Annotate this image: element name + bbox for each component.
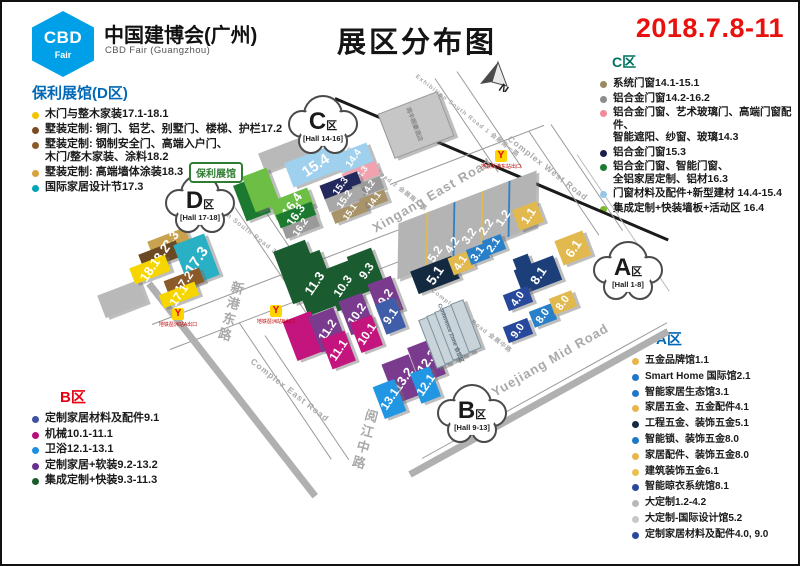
map-label: Conference Zone 会议区 xyxy=(436,302,466,364)
cloud-bump xyxy=(608,241,648,281)
hall-number-label: 12.1 xyxy=(413,371,438,398)
hall-number-label: 11.1 xyxy=(326,337,350,364)
logo-subtext: Fair xyxy=(55,50,72,60)
hall-1.1: 1.1 xyxy=(512,201,544,231)
road-line xyxy=(235,207,307,314)
hall-number-label: 8.1 xyxy=(527,263,550,286)
legend-item-label: Smart Home 国际馆2.1 xyxy=(645,370,751,384)
map-block xyxy=(434,307,466,361)
legend-dot-icon xyxy=(632,484,639,491)
hall-8.0: 8.0 xyxy=(529,303,557,327)
legend-item-label: 墅装定制: 钢制安全门、高端入户门、 木门/整木家装、涂料18.2 xyxy=(45,138,228,164)
hall-number-label: 18.1 xyxy=(137,254,164,283)
legend-hall-c: C区 系统门窗14.1-15.1铝合金门窗14.2-16.2铝合金门窗、艺术玻璃… xyxy=(600,52,800,216)
hall-number-label: 6.1 xyxy=(562,236,585,259)
road-label: Complex East Road xyxy=(249,356,331,423)
legend-hall-b: B区 定制家居材料及配件9.1机械10.1-11.1卫浴12.1-13.1定制家… xyxy=(32,386,242,490)
hall-number-label: 9.0 xyxy=(509,320,528,339)
legend-item: 铝合金门窗14.2-16.2 xyxy=(600,92,800,105)
hall-number-label: 13.2 xyxy=(389,364,416,393)
poster-page: CBD Fair 中国建博会(广州) CBD Fair (Guangzhou) … xyxy=(0,0,800,566)
cloud-bump xyxy=(303,95,343,135)
cloud-bump xyxy=(452,384,492,424)
legend-item: 大定制-国际设计馆5.2 xyxy=(632,512,800,526)
hall-number-label: 18.2 xyxy=(147,240,174,269)
road-label: Yuejiang Mid Road xyxy=(489,320,611,399)
hall-number-label: 18.3 xyxy=(156,227,183,256)
hall-number-label: 11.3 xyxy=(301,269,327,298)
legend-item: 大定制1.2-4.2 xyxy=(632,496,800,510)
hall-15.2: 15.2 xyxy=(325,186,365,213)
legend-item-label: 五金品牌馆1.1 xyxy=(645,354,709,368)
hall-number-label: 14.1 xyxy=(364,190,382,210)
legend-item-label: 家居五金、五金配件4.1 xyxy=(645,401,749,415)
map-block xyxy=(450,299,482,353)
metro-logo-glyph: Y xyxy=(175,309,182,319)
cloud-bump xyxy=(627,274,653,300)
metro-logo-glyph: Y xyxy=(498,151,505,161)
road-line xyxy=(170,248,432,349)
map-block xyxy=(97,280,147,318)
legend-dot-icon xyxy=(32,463,39,470)
event-date: 2018.7.8-11 xyxy=(636,13,784,44)
hall-16.3: 16.3 xyxy=(276,202,316,229)
hall-number-label: 10.1 xyxy=(354,320,379,347)
road-line xyxy=(408,328,669,477)
hall-17.1: 17.1 xyxy=(159,282,199,309)
legend-dot-icon xyxy=(32,127,39,134)
legend-item: 智能晾衣系统馆8.1 xyxy=(632,480,800,494)
hall-number-label: 2.1 xyxy=(485,235,504,254)
zone-badge-text: A区[Hall 1-8] xyxy=(591,241,665,305)
zone-letter: A xyxy=(614,257,631,279)
hall-number-label: 11.2 xyxy=(315,317,339,344)
legend-item-label: 国际家居设计节17.3 xyxy=(45,181,143,194)
hall-number-label: 16.2 xyxy=(291,216,311,238)
hall-number-label: 9.2 xyxy=(375,286,396,308)
hall-number-label: 14.3 xyxy=(352,164,370,184)
road-label: Complex West Road xyxy=(506,134,590,203)
legend-d-title: 保利展馆(D区) xyxy=(32,82,294,103)
hall-number-label: 17.1 xyxy=(167,281,192,308)
hall-9.1: 9.1 xyxy=(374,297,405,334)
cloud-bump xyxy=(447,417,473,443)
metro-station-label: 地铁琶洲站B出口 xyxy=(246,318,306,325)
hall-9.3: 9.3 xyxy=(347,248,386,295)
zone-badge-a: A区[Hall 1-8] xyxy=(591,241,665,305)
map-block xyxy=(378,91,455,159)
zone-badge-text: C区[Hall 14-16] xyxy=(286,95,360,159)
hall-5.1: 5.1 xyxy=(410,256,460,294)
logo-text: CBD xyxy=(44,28,82,48)
road-line xyxy=(239,322,332,459)
legend-dot-icon xyxy=(32,170,39,177)
hall-8.1: 8.1 xyxy=(514,255,563,294)
legend-item-label: 建筑装饰五金6.1 xyxy=(645,465,719,479)
hall-14.2: 14.2 xyxy=(352,176,385,199)
zone-badge-text: B区[Hall 9-13] xyxy=(435,384,509,448)
cloud-bump xyxy=(437,399,465,427)
hall-seam xyxy=(508,180,511,237)
legend-item: Smart Home 国际馆2.1 xyxy=(632,370,800,384)
map-block xyxy=(426,311,458,365)
zone-suffix: 区 xyxy=(203,196,214,212)
map-block xyxy=(273,240,325,304)
metro-station-icon: Y xyxy=(270,305,282,317)
legend-item: 铝合金门窗15.3 xyxy=(600,146,800,159)
cloud-bump xyxy=(603,274,629,300)
legend-item-label: 定制家居材料及配件9.1 xyxy=(45,412,159,426)
legend-item-label: 集成定制+快装9.3-11.3 xyxy=(45,474,157,488)
cloud-cover xyxy=(299,106,347,146)
map-label: 5.2 xyxy=(425,243,446,265)
legend-item-label: 智能晾衣系统馆8.1 xyxy=(645,480,729,494)
hall-12.1: 12.1 xyxy=(409,366,440,403)
hall-12.2: 12.2 xyxy=(407,338,446,383)
legend-dot-icon xyxy=(632,405,639,412)
legend-dot-icon xyxy=(632,374,639,381)
zone-letter: C xyxy=(309,111,326,133)
hall-number-label: 17.2 xyxy=(172,267,197,294)
legend-item: 智能锁、装饰五金8.0 xyxy=(632,433,800,447)
hall-seam xyxy=(425,212,428,269)
legend-dot-icon xyxy=(632,532,639,539)
legend-dot-icon xyxy=(32,416,39,423)
map-block xyxy=(513,254,534,275)
cloud-bump xyxy=(298,128,324,154)
hall-4.1: 4.1 xyxy=(448,251,475,276)
hall-number-label: 17.3 xyxy=(181,243,211,277)
zone-badge-b: B区[Hall 9-13] xyxy=(435,384,509,448)
map-block xyxy=(282,311,325,361)
hall-10.3: 10.3 xyxy=(322,260,364,311)
road-line xyxy=(529,131,600,235)
legend-dot-icon xyxy=(600,110,607,117)
hall-17.3: 17.3 xyxy=(173,234,220,287)
zone-badge-c: C区[Hall 14-16] xyxy=(286,95,360,159)
cloud-bump xyxy=(635,256,663,284)
legend-dot-icon xyxy=(632,500,639,507)
organization-name-cn: 中国建博会(广州) xyxy=(104,19,257,48)
map-label: 2.2 xyxy=(476,216,497,238)
legend-item-label: 铝合金门窗14.2-16.2 xyxy=(613,92,710,105)
hall-13.2: 13.2 xyxy=(381,354,423,404)
legend-dot-icon xyxy=(632,516,639,523)
legend-item: 墅装定制: 钢制安全门、高端入户门、 木门/整木家装、涂料18.2 xyxy=(32,138,294,164)
legend-item: 定制家居+软装9.2-13.2 xyxy=(32,459,242,473)
metro-station-icon: Y xyxy=(172,308,184,320)
hall-10.1: 10.1 xyxy=(350,315,383,353)
legend-item: 铝合金门窗、智能门窗、 全铝家居定制、铝材16.3 xyxy=(600,160,800,185)
legend-item: 铝合金门窗、艺术玻璃门、高端门窗配件、 智能遮阳、纱窗、玻璃14.3 xyxy=(600,106,800,144)
legend-c-title: C区 xyxy=(612,52,800,72)
hall-10.2: 10.2 xyxy=(338,293,374,336)
metro-station-label: 地铁新港东站出口 xyxy=(471,163,531,170)
legend-dot-icon xyxy=(32,185,39,192)
legend-item-label: 墅装定制: 铜门、铝艺、别墅门、楼梯、护栏17.2 xyxy=(45,123,282,136)
hall-15.1: 15.1 xyxy=(331,200,368,224)
zone-letter-row: C区 xyxy=(309,111,337,133)
hall-14.1: 14.1 xyxy=(358,190,388,211)
cloud-bump xyxy=(199,207,225,233)
map-block xyxy=(418,315,450,369)
legend-item: 家居配件、装饰五金8.0 xyxy=(632,449,800,463)
map-label: 1.2 xyxy=(493,207,514,229)
legend-item-label: 门窗材料及配件+新型建材 14.4-15.4 xyxy=(613,187,782,200)
hall-4.0: 4.0 xyxy=(503,285,533,310)
legend-dot-icon xyxy=(32,432,39,439)
hall-number-label: 10.2 xyxy=(344,300,369,327)
hall-number-label: 14.2 xyxy=(359,177,377,197)
cbd-fair-logo: CBD Fair xyxy=(32,11,94,77)
zone-hall-range: [Hall 9-13] xyxy=(454,423,490,432)
legend-dot-icon xyxy=(600,96,607,103)
hall-17.2: 17.2 xyxy=(164,267,205,295)
zone-suffix: 区 xyxy=(475,406,486,422)
legend-item: 国际家居设计节17.3 xyxy=(32,181,294,194)
legend-item: 建筑装饰五金6.1 xyxy=(632,465,800,479)
hall-18.3: 18.3 xyxy=(147,227,190,257)
legend-item-label: 定制家居材料及配件4.0, 9.0 xyxy=(645,528,768,542)
hall-18.1: 18.1 xyxy=(129,254,171,283)
map-label: 南丰朗豪酒店 xyxy=(404,106,425,143)
legend-item-label: 智能家居生态馆3.1 xyxy=(645,386,729,400)
cloud-bump xyxy=(593,256,621,284)
hall-14.3: 14.3 xyxy=(342,161,381,187)
cloud-bump xyxy=(330,110,358,138)
hall-13.1: 13.1 xyxy=(372,379,406,419)
legend-dot-icon xyxy=(632,469,639,476)
cloud-bump xyxy=(322,128,348,154)
legend-item-label: 铝合金门窗15.3 xyxy=(613,146,686,159)
hall-number-label: 14.4 xyxy=(344,147,364,169)
hall-14.4: 14.4 xyxy=(335,143,374,174)
legend-dot-icon xyxy=(600,150,607,157)
legend-item: 集成定制+快装9.3-11.3 xyxy=(32,474,242,488)
metro-logo-glyph: Y xyxy=(273,306,280,316)
hall-seam xyxy=(480,191,483,248)
zone-letter-row: A区 xyxy=(614,257,642,279)
legend-item-label: 家居配件、装饰五金8.0 xyxy=(645,449,749,463)
legend-item-label: 卫浴12.1-13.1 xyxy=(45,443,113,457)
legend-item: 集成定制+快装墙板+活动区 16.4 xyxy=(600,202,800,215)
zone-hall-range: [Hall 1-8] xyxy=(612,280,644,289)
legend-item-label: 机械10.1-11.1 xyxy=(45,428,113,442)
map-block xyxy=(397,170,536,279)
road-line xyxy=(152,229,400,325)
legend-dot-icon xyxy=(600,81,607,88)
legend-item-label: 墅装定制: 高端墙体涂装18.3 xyxy=(45,166,183,179)
zone-suffix: 区 xyxy=(631,263,642,279)
road-line xyxy=(265,335,350,460)
hall-6.1: 6.1 xyxy=(554,230,591,265)
hall-number-label: 15.1 xyxy=(340,202,358,222)
hall-11.1: 11.1 xyxy=(321,331,356,370)
organization-name-en: CBD Fair (Guangzhou) xyxy=(105,45,210,56)
legend-item-label: 工程五金、装饰五金5.1 xyxy=(645,417,749,431)
legend-item-label: 智能锁、装饰五金8.0 xyxy=(645,433,739,447)
hall-number-label: 15.2 xyxy=(335,188,355,210)
road-label: Exhibition South Road 3 会展南三路 xyxy=(196,187,311,280)
cloud-bump xyxy=(175,207,201,233)
hall-9.2: 9.2 xyxy=(367,276,403,319)
road-label: Complex Mid Road 会展中路 xyxy=(430,285,515,354)
legend-dot-icon xyxy=(32,447,39,454)
legend-item-label: 大定制1.2-4.2 xyxy=(645,496,706,510)
legend-dot-icon xyxy=(600,191,607,198)
legend-b-title: B区 xyxy=(60,386,242,407)
legend-dot-icon xyxy=(600,206,607,213)
page-title: 展区分布图 xyxy=(302,19,532,61)
legend-hall-d: 保利展馆(D区) 木门与整木家装17.1-18.1墅装定制: 铜门、铝艺、别墅门… xyxy=(32,82,294,196)
legend-hall-a: A区 五金品牌馆1.1Smart Home 国际馆2.1智能家居生态馆3.1家居… xyxy=(632,328,800,544)
hall-number-label: 8.0 xyxy=(534,305,553,324)
cloud-cover xyxy=(448,395,496,435)
legend-dot-icon xyxy=(632,421,639,428)
road-line xyxy=(307,131,345,162)
road-line xyxy=(422,322,667,459)
zone-letter: B xyxy=(458,400,475,422)
legend-a-title: A区 xyxy=(656,328,800,349)
hall-number-label: 9.3 xyxy=(356,260,377,282)
road-label: 新港东路 xyxy=(213,279,248,346)
road-label: 阅江中路 xyxy=(347,407,382,474)
hall-2.1: 2.1 xyxy=(482,234,506,256)
legend-dot-icon xyxy=(632,453,639,460)
legend-dot-icon xyxy=(600,164,607,171)
hall-number-label: 15.3 xyxy=(331,175,351,197)
legend-item: 机械10.1-11.1 xyxy=(32,428,242,442)
cloud-cover xyxy=(604,252,652,292)
road-line xyxy=(258,200,333,311)
legend-dot-icon xyxy=(632,390,639,397)
legend-item: 工程五金、装饰五金5.1 xyxy=(632,417,800,431)
legend-dot-icon xyxy=(32,478,39,485)
hall-9.0: 9.0 xyxy=(503,317,533,342)
legend-dot-icon xyxy=(32,112,39,119)
legend-item-label: 集成定制+快装墙板+活动区 16.4 xyxy=(613,202,764,215)
hall-8.0: 8.0 xyxy=(549,290,577,314)
legend-item: 门窗材料及配件+新型建材 14.4-15.4 xyxy=(600,187,800,200)
legend-item: 五金品牌馆1.1 xyxy=(632,354,800,368)
hall-16.2: 16.2 xyxy=(282,215,320,239)
hall-18.2: 18.2 xyxy=(138,240,181,270)
zone-suffix: 区 xyxy=(326,117,337,133)
legend-item-label: 大定制-国际设计馆5.2 xyxy=(645,512,742,526)
hall-seam xyxy=(453,202,456,259)
hall-number-label: 4.1 xyxy=(452,253,471,272)
legend-item: 定制家居材料及配件9.1 xyxy=(32,412,242,426)
hall-number-label: 8.0 xyxy=(554,292,573,311)
road-line xyxy=(390,124,544,184)
legend-item: 系统门窗14.1-15.1 xyxy=(600,77,800,90)
legend-item-label: 铝合金门窗、艺术玻璃门、高端门窗配件、 智能遮阳、纱窗、玻璃14.3 xyxy=(613,106,800,144)
hall-number-label: 5.1 xyxy=(423,262,447,287)
legend-item-label: 木门与整木家装17.1-18.1 xyxy=(45,108,168,121)
hall-15.3: 15.3 xyxy=(319,171,362,200)
legend-item-label: 定制家居+软装9.2-13.2 xyxy=(45,459,158,473)
zone-hall-range: [Hall 14-16] xyxy=(303,134,343,143)
poly-pavilion-tag: 保利展馆 xyxy=(189,162,243,183)
legend-item: 墅装定制: 铜门、铝艺、别墅门、楼梯、护栏17.2 xyxy=(32,123,294,136)
legend-item: 智能家居生态馆3.1 xyxy=(632,386,800,400)
hall-11.2: 11.2 xyxy=(308,307,347,352)
road-label: Exhibition South Road 2 会展南二路 xyxy=(322,125,430,212)
hall-number-label: 10.3 xyxy=(331,272,356,299)
zone-letter-row: B区 xyxy=(458,400,486,422)
legend-item: 卫浴12.1-13.1 xyxy=(32,443,242,457)
metro-station-icon: Y xyxy=(495,150,507,162)
legend-item: 定制家居材料及配件4.0, 9.0 xyxy=(632,528,800,542)
map-label: 3.2 xyxy=(459,225,480,247)
hall-number-label: 16.3 xyxy=(284,201,309,228)
legend-dot-icon xyxy=(632,358,639,365)
hall-3.1: 3.1 xyxy=(466,243,490,265)
hall-number-label: 13.1 xyxy=(377,385,402,412)
legend-dot-icon xyxy=(32,142,39,149)
legend-item: 家居五金、五金配件4.1 xyxy=(632,401,800,415)
road-label: Xingang East Road xyxy=(370,155,495,236)
hall-number-label: 9.1 xyxy=(380,305,401,327)
hall-11.3: 11.3 xyxy=(288,250,341,316)
hall-number-label: 1.1 xyxy=(518,205,539,227)
hall-number-label: 4.0 xyxy=(509,288,528,307)
legend-item: 木门与整木家装17.1-18.1 xyxy=(32,108,294,121)
hall-number-label: 3.1 xyxy=(469,244,488,263)
zone-hall-range: [Hall 17-18] xyxy=(180,213,220,222)
legend-item-label: 系统门窗14.1-15.1 xyxy=(613,77,699,90)
legend-item-label: 铝合金门窗、智能门窗、 全铝家居定制、铝材16.3 xyxy=(613,160,729,185)
compass-north-icon: N xyxy=(474,58,514,92)
metro-station-label: 地铁琶洲站A出口 xyxy=(148,321,208,328)
cloud-bump xyxy=(479,399,507,427)
cloud-bump xyxy=(471,417,497,443)
map-block xyxy=(442,303,474,357)
map-label: 4.2 xyxy=(442,234,463,256)
hall-number-label: 12.2 xyxy=(413,346,440,375)
hall-number-label: 15.4 xyxy=(299,150,333,180)
legend-item: 墅装定制: 高端墙体涂装18.3 xyxy=(32,166,294,179)
legend-dot-icon xyxy=(632,437,639,444)
